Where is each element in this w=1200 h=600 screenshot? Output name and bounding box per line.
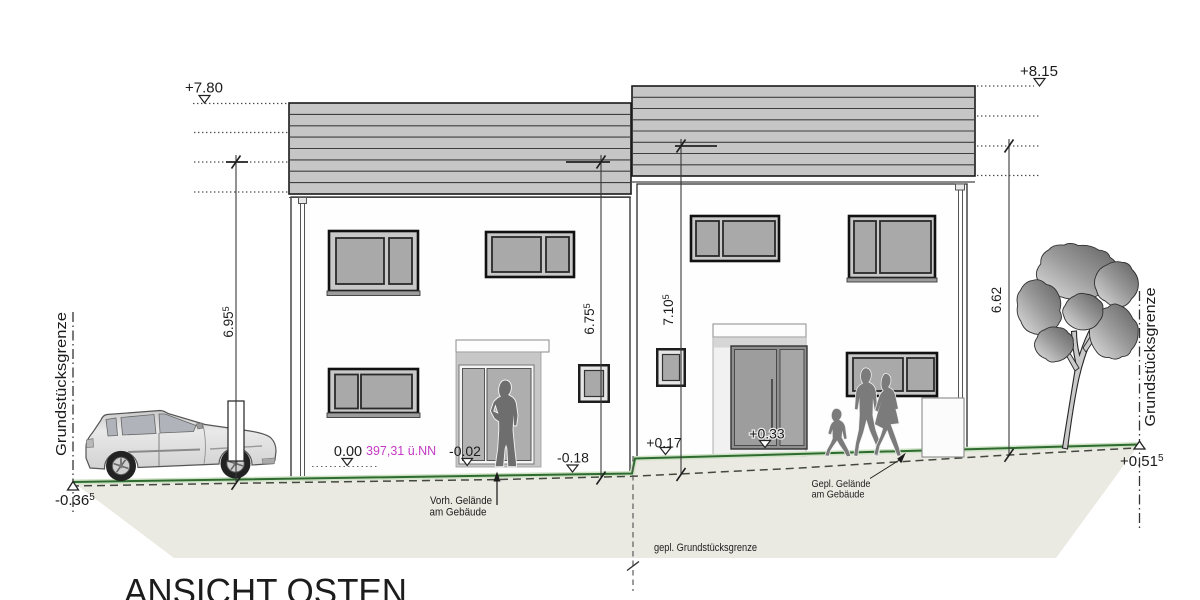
svg-text:-0.18: -0.18 — [557, 450, 589, 466]
svg-text:6.62: 6.62 — [989, 287, 1004, 313]
svg-text:-0.365: -0.365 — [55, 492, 95, 509]
svg-text:am Gebäude: am Gebäude — [812, 489, 865, 501]
svg-text:gepl. Grundstücksgrenze: gepl. Grundstücksgrenze — [654, 542, 757, 554]
svg-text:am Gebäude: am Gebäude — [430, 507, 487, 519]
svg-text:397,31 ü.NN: 397,31 ü.NN — [366, 444, 436, 458]
svg-text:Grundstücksgrenze: Grundstücksgrenze — [1142, 288, 1159, 427]
svg-text:Vorh. Gelände: Vorh. Gelände — [430, 495, 492, 507]
svg-text:ANSICHT OSTEN: ANSICHT OSTEN — [124, 571, 407, 600]
svg-text:0.00: 0.00 — [334, 444, 362, 460]
svg-text:+8.15: +8.15 — [1020, 63, 1058, 80]
svg-text:Grundstücksgrenze: Grundstücksgrenze — [53, 312, 70, 456]
svg-text:+0.17: +0.17 — [646, 435, 682, 451]
svg-text:+0.515: +0.515 — [1120, 453, 1164, 470]
svg-text:-0.02: -0.02 — [449, 443, 481, 459]
svg-text:+7.80: +7.80 — [185, 80, 223, 97]
svg-text:+0.33: +0.33 — [749, 426, 785, 442]
